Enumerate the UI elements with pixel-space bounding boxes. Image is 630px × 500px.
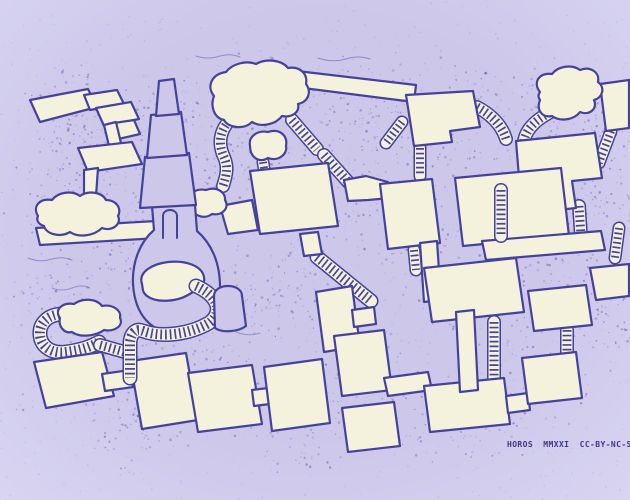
- dungeon-map: [0, 0, 630, 500]
- room-se-2: [528, 285, 592, 331]
- tower-tier-2: [147, 112, 187, 158]
- dungeon-map-page: HOROS MMXXI CC-BY-NC-SA: [0, 0, 630, 500]
- tower-tier-1: [156, 79, 179, 116]
- map-attribution: HOROS MMXXI CC-BY-NC-SA: [507, 440, 630, 449]
- tower-tier-3: [140, 153, 196, 208]
- contour-north: [196, 55, 240, 58]
- contour-south: [236, 332, 260, 335]
- room-ne-edge: [600, 80, 629, 131]
- corridor-mid-hall-south: [300, 232, 322, 256]
- corridor-c-link: [352, 307, 376, 327]
- room-e-edge: [590, 264, 629, 300]
- room-s-1: [334, 330, 392, 396]
- room-mid-hall: [250, 163, 338, 234]
- room-sw-2: [130, 353, 198, 429]
- tower-door: [163, 210, 177, 238]
- contour-west: [28, 258, 72, 261]
- stair-r1-west-base: [386, 122, 402, 143]
- room-r4: [380, 179, 440, 249]
- room-s-center: [264, 359, 330, 431]
- room-r1: [406, 91, 480, 146]
- room-s-3: [342, 402, 400, 452]
- corridor-vert-east: [456, 310, 478, 392]
- corridor-top: [295, 71, 416, 102]
- cave-nw: [36, 193, 119, 236]
- room-sw-3: [188, 365, 262, 432]
- cave-ne: [537, 67, 603, 120]
- room-se-1: [522, 352, 582, 404]
- platform-round: [214, 286, 246, 331]
- room-nw-5: [78, 142, 142, 172]
- contour-top-mid: [318, 57, 370, 61]
- cave-sw: [58, 300, 121, 336]
- contour-southwest: [52, 286, 90, 290]
- cave-grotto: [250, 131, 287, 160]
